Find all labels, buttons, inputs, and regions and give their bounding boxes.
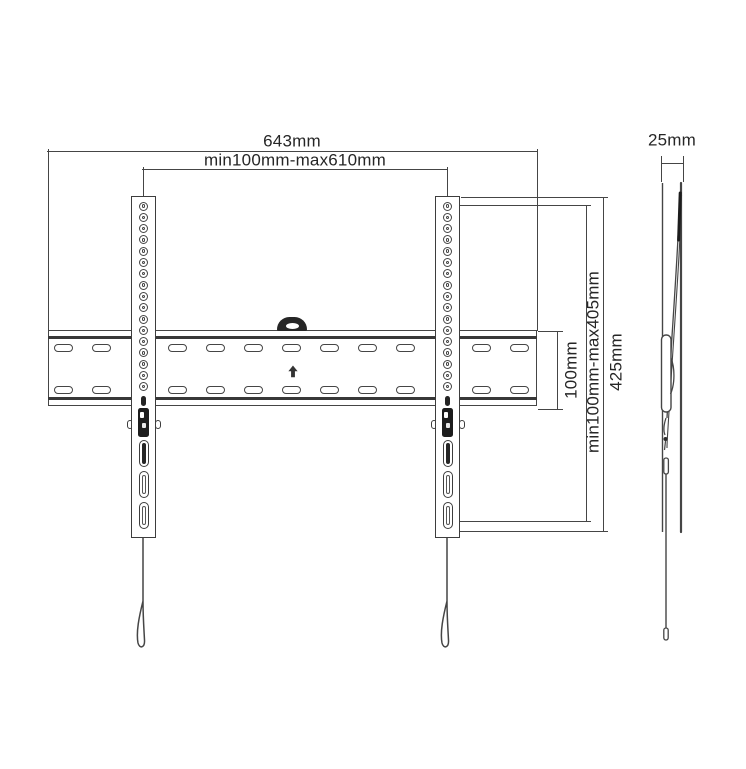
rail-hole-center: [142, 329, 145, 332]
dim-label-mount-width-range: min100mm-max610mm: [204, 152, 386, 169]
side-cord-collar: [664, 458, 669, 474]
rail-hole-center: [446, 385, 449, 388]
dim-line-bracket-height: [603, 197, 604, 532]
rail-hole-center: [142, 385, 145, 388]
plate-slot: [244, 386, 263, 394]
rail-adjust-slot: [139, 471, 149, 498]
rail-adjust-slot: [139, 502, 149, 529]
plate-slot: [282, 344, 301, 352]
rail-latch: [442, 408, 453, 437]
ext-line-bottom-hole: [456, 521, 591, 522]
rail-adjust-slot-inner: [142, 475, 146, 494]
rail-hole: [139, 281, 148, 290]
rail-latch: [138, 408, 149, 437]
rail-adjust-slot: [443, 471, 453, 498]
pull-cord-left: [131, 537, 155, 657]
rail-hole-center: [142, 227, 145, 230]
side-cord-end-cap: [664, 628, 668, 640]
rail-hole: [139, 213, 148, 222]
bubble-level: [277, 317, 307, 331]
dim-line-plate-height: [557, 331, 558, 410]
plate-slot: [510, 386, 529, 394]
rail-hole: [443, 213, 452, 222]
rail-hole-center: [446, 272, 449, 275]
side-hook-tail: [665, 441, 666, 450]
rail-adjust-slot-inner: [446, 475, 450, 494]
rail-adjust-slot-inner: [142, 506, 146, 525]
rail-hole-center: [446, 295, 449, 298]
rail-hole-center: [446, 261, 449, 264]
rail-adjust-slot: [139, 440, 149, 467]
side-rail-dark-segment: [679, 193, 681, 240]
wall-plate-top-fold-line: [48, 336, 537, 339]
rail-hole: [139, 315, 148, 324]
dim-label-bracket-height: 425mm: [608, 333, 625, 391]
plate-slot: [320, 344, 339, 352]
latch-notch: [444, 412, 448, 418]
plate-slot: [472, 386, 491, 394]
wall-plate-bottom-fold-line: [48, 397, 537, 400]
rail-hole-center: [446, 329, 449, 332]
plate-slot: [320, 386, 339, 394]
ext-line-top-hole: [448, 205, 591, 206]
rail-hole: [139, 360, 148, 369]
rail-hole-center: [446, 340, 449, 343]
plate-slot: [358, 344, 377, 352]
rail-hole-center: [446, 362, 449, 365]
plate-slot: [396, 386, 415, 394]
bubble-level-window: [286, 323, 299, 329]
rail-hole-center: [446, 351, 449, 354]
wall-mount-technical-drawing: 643mm min100mm-max610mm 100mm min100mm-m…: [0, 0, 746, 769]
plate-slot: [92, 344, 111, 352]
rail-pin-slot: [141, 396, 146, 406]
rail-hole-center: [142, 317, 145, 320]
rail-hole: [139, 258, 148, 267]
rail-hole: [139, 247, 148, 256]
side-hook-dot: [664, 437, 668, 441]
plate-slot: [282, 386, 301, 394]
rail-hole-center: [142, 204, 145, 207]
rail-hole: [139, 371, 148, 380]
rail-hole: [443, 247, 452, 256]
rail-adjust-slot-inner: [446, 443, 450, 464]
plate-slot: [54, 344, 73, 352]
latch-detail: [446, 423, 450, 428]
rail-hole-center: [446, 306, 449, 309]
rail-hole-center: [446, 216, 449, 219]
rail-hole: [139, 326, 148, 335]
plate-slot: [396, 344, 415, 352]
rail-pin-slot: [445, 396, 450, 406]
rail-hole: [443, 258, 452, 267]
pull-cord-right: [435, 537, 459, 657]
plate-slot: [472, 344, 491, 352]
plate-slot: [244, 344, 263, 352]
latch-notch: [140, 412, 144, 418]
rail-hole: [139, 292, 148, 301]
rail-hole-center: [142, 340, 145, 343]
rail-hole-center: [142, 261, 145, 264]
rail-hole-center: [446, 238, 449, 241]
plate-slot: [510, 344, 529, 352]
dim-label-profile-depth: 25mm: [648, 132, 696, 149]
dim-label-plate-height: 100mm: [563, 341, 580, 399]
ext-line-plate-top: [538, 331, 563, 332]
plate-slot: [358, 386, 377, 394]
rail-hole-center: [446, 227, 449, 230]
dim-label-mount-height-range: min100mm-max405mm: [585, 271, 602, 453]
plate-slot: [168, 344, 187, 352]
rail-hole-center: [142, 374, 145, 377]
ext-line-rail-bottom: [446, 531, 608, 532]
rail-hole-center: [142, 283, 145, 286]
latch-detail: [142, 423, 146, 428]
ext-line-rail-left: [143, 167, 144, 197]
plate-slot: [206, 344, 225, 352]
center-mark-arrow-icon: [288, 365, 298, 378]
side-view-profile: [653, 178, 697, 656]
rail-hole: [443, 315, 452, 324]
dim-line-profile-depth: [661, 163, 684, 164]
plate-slot: [168, 386, 187, 394]
rail-hole-center: [142, 362, 145, 365]
rail-hole: [443, 360, 452, 369]
ext-line-plate-right: [537, 149, 538, 331]
plate-slot: [54, 386, 73, 394]
rail-hole: [443, 202, 452, 211]
rail-hole-center: [142, 238, 145, 241]
rail-hole-center: [142, 295, 145, 298]
rail-adjust-slot: [443, 440, 453, 467]
rail-adjust-slot-inner: [446, 506, 450, 525]
plate-slot: [206, 386, 225, 394]
rail-hole-center: [142, 306, 145, 309]
rail-hole-center: [446, 283, 449, 286]
side-latch-housing: [662, 335, 672, 412]
side-hook-curve: [664, 418, 666, 435]
ext-line-plate-left: [48, 149, 49, 331]
rail-hole-center: [142, 351, 145, 354]
rail-hole: [443, 281, 452, 290]
ext-line-plate-bottom: [538, 409, 563, 410]
ext-line-rail-top: [461, 197, 608, 198]
rail-hole-center: [446, 249, 449, 252]
rail-adjust-slot-inner: [142, 443, 146, 464]
rail-hole: [443, 292, 452, 301]
rail-adjust-slot: [443, 502, 453, 529]
rail-hole-center: [446, 374, 449, 377]
rail-hole-center: [446, 204, 449, 207]
rail-hole-center: [446, 317, 449, 320]
dim-label-total-width: 643mm: [263, 133, 321, 150]
rail-hole-center: [142, 216, 145, 219]
rail-hole: [443, 326, 452, 335]
rail-hole: [443, 371, 452, 380]
rail-hole: [139, 202, 148, 211]
plate-slot: [92, 386, 111, 394]
rail-hole-center: [142, 249, 145, 252]
rail-hole-center: [142, 272, 145, 275]
